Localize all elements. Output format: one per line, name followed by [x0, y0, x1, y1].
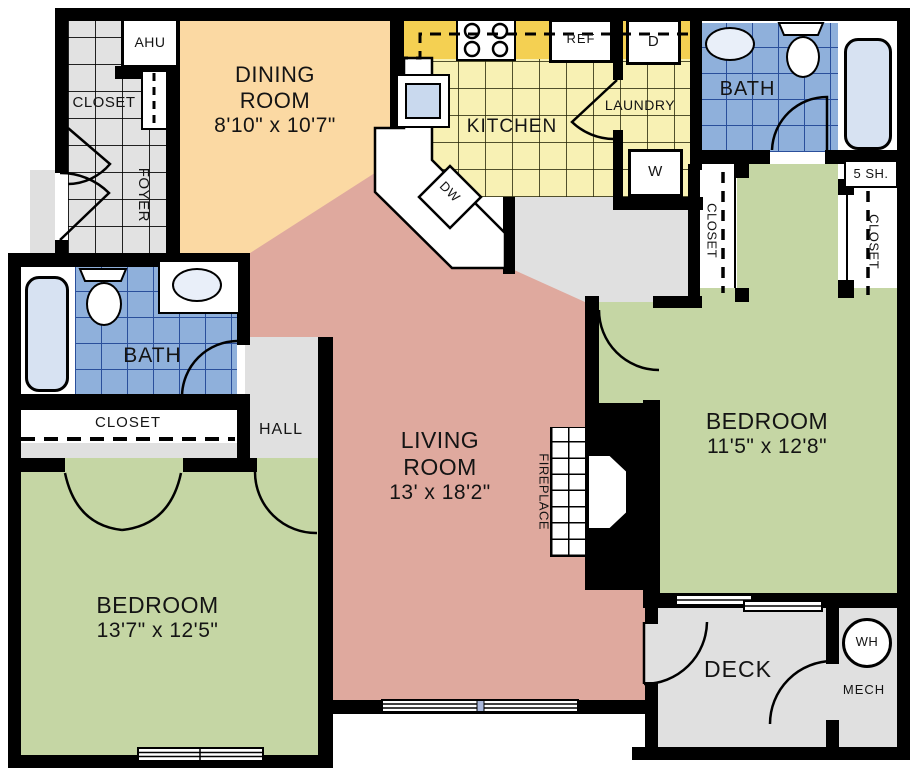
bedroom-right-nook [599, 298, 659, 406]
wall-left-lower [8, 253, 21, 768]
wall-kitchen-stub [503, 197, 515, 274]
bedroom-right-dims: 11'5" x 12'8" [658, 435, 876, 460]
bedroom-left-dims: 13'7" x 12'5" [40, 619, 275, 644]
dining-room-name-2: ROOM [180, 88, 370, 114]
dining-room-label: DINING ROOM 8'10" x 10'7" [180, 62, 370, 139]
wall-mech-top [826, 606, 839, 664]
wall-bedroom-left-bottom [8, 755, 333, 768]
kitchen-sink-basin [405, 83, 441, 119]
living-room-name-1: LIVING [340, 427, 540, 454]
wall-bedroom-right-top [653, 296, 702, 308]
foyer-closet-label: CLOSET [62, 94, 146, 112]
bedroom-left-label: BEDROOM 13'7" x 12'5" [40, 592, 275, 644]
wall-bedroom-left-top-a [8, 458, 65, 472]
sink-left-bath [172, 268, 222, 302]
wall-bedroom-right-nook [585, 296, 599, 408]
laundry-label: LAUNDRY [590, 97, 690, 114]
ahu-label: AHU [121, 34, 179, 51]
wall-deck-left-top [645, 608, 658, 624]
wall-bath-top-bottom-left [697, 150, 770, 164]
fireplace-label: FIREPLACE [536, 444, 551, 540]
entry-threshold [30, 170, 55, 255]
hall-closet-label: CLOSET [58, 414, 198, 432]
hall-closet-front [17, 443, 250, 458]
closet-right-label: CLOSET [866, 214, 881, 270]
closet-left-label: CLOSET [704, 203, 719, 259]
wall-left-upper [55, 8, 68, 173]
sink-top-bath [705, 27, 755, 61]
wall-kitchen-laundry-upper [613, 20, 623, 80]
wall-deck-bottom [632, 747, 910, 760]
wall-closet1-stub-bottom [735, 288, 749, 302]
wall-closet1-stub-top [735, 164, 749, 178]
living-room-dims: 13' x 18'2" [340, 481, 540, 506]
wall-bedroom-right-bottom [643, 593, 897, 608]
bedroom-right-label: BEDROOM 11'5" x 12'8" [658, 408, 876, 460]
shelves-label: 5 SH. [844, 166, 898, 181]
refrigerator-label: REF [549, 31, 613, 46]
washer-label: W [628, 163, 683, 181]
bedroom-right-name: BEDROOM [658, 408, 876, 435]
fireplace-hearth [550, 427, 586, 557]
deck-label: DECK [688, 656, 788, 683]
living-room-label: LIVING ROOM 13' x 18'2" [340, 427, 540, 506]
bedroom-left-name: BEDROOM [40, 592, 275, 619]
wall-bath-left-right-top [237, 253, 250, 345]
wall-mech-bottom [826, 720, 839, 750]
wall-right [897, 8, 910, 760]
wall-bedroom-left-top-b [183, 458, 257, 472]
wall-closet2-stub-bottom [838, 280, 854, 298]
bath-top-label: BATH [705, 78, 790, 102]
floor-plan: AHU CLOSET FOYER DINING ROOM 8'10" x 10'… [0, 0, 922, 782]
bathtub-left [25, 276, 69, 392]
bedroom-right-alcove [737, 164, 838, 296]
wall-kitchen-laundry-lower [613, 130, 623, 203]
dryer-label: D [626, 33, 681, 51]
wall-closet1-left [688, 164, 700, 302]
fireplace-chimney-block [585, 403, 643, 590]
wall-bath-left-bottom [8, 394, 250, 408]
kitchen-label: KITCHEN [452, 116, 572, 138]
water-heater-label: WH [842, 634, 892, 649]
toilet-top-bath [786, 36, 820, 78]
wall-living-bottom [333, 700, 658, 714]
hall-label: HALL [246, 421, 316, 440]
wall-bedroom-left-right [318, 337, 333, 768]
dining-room-dims: 8'10" x 10'7" [180, 114, 370, 139]
stove [456, 19, 516, 61]
living-room-name-2: ROOM [340, 454, 540, 481]
bath-left-label: BATH [110, 344, 195, 369]
wall-laundry-bath [690, 20, 702, 170]
toilet-left-bath [86, 282, 122, 326]
bathtub-top [844, 38, 892, 150]
mech-label: MECH [830, 682, 898, 697]
foyer-label: FOYER [134, 160, 152, 230]
dining-room-name-1: DINING [180, 62, 370, 88]
